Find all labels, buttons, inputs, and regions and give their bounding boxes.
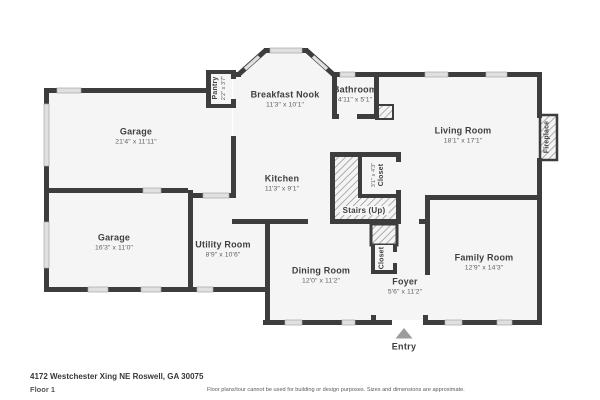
label-closet-stairs: Closet 3'1" x 4'3" [371, 163, 387, 187]
room-dims: 5'6" x 11'2" [388, 289, 422, 297]
foyer-closet-hatch [371, 224, 397, 245]
room-name: Garage [95, 233, 133, 244]
room-name: Dining Room [292, 266, 350, 277]
room-name: Garage [115, 127, 156, 138]
room-label-breakfast-nook: Breakfast Nook 11'3" x 10'1" [251, 90, 320, 111]
floorplan-page: Garage 21'4" x 11'11" Garage 16'3" x 11'… [0, 0, 600, 400]
room-name: Breakfast Nook [251, 90, 320, 101]
room-name: Family Room [455, 253, 514, 264]
room-label-kitchen: Kitchen 11'3" x 9'1" [265, 174, 299, 195]
floorplan-drawing [0, 0, 600, 400]
entry-arrow-icon [396, 328, 413, 339]
room-name: Kitchen [265, 174, 299, 185]
room-label-dining: Dining Room 12'0" x 11'2" [292, 266, 350, 287]
feature-name: Closet [378, 163, 387, 187]
label-fireplace: Fireplace [544, 121, 553, 154]
feature-dims: 2'2" x 3'7" [221, 76, 228, 100]
address-text: 4172 Westchester Xing NE Roswell, GA 300… [30, 372, 203, 381]
label-pantry: Pantry 2'2" x 3'7" [212, 76, 228, 100]
room-dims: 8'9" x 10'6" [195, 252, 250, 260]
feature-name: Stairs (Up) [340, 206, 389, 215]
room-label-family: Family Room 12'9" x 14'3" [455, 253, 514, 274]
label-stairs: Stairs (Up) [340, 199, 389, 219]
feature-name: Pantry [212, 76, 221, 100]
room-name: Utility Room [195, 240, 250, 251]
label-closet-foyer: Closet [379, 247, 388, 270]
room-dims: 12'9" x 14'3" [455, 265, 514, 273]
room-label-living: Living Room 18'1" x 17'1" [435, 126, 492, 147]
room-dims: 18'1" x 17'1" [435, 138, 492, 146]
entry-door-opening [392, 320, 423, 325]
room-name: Living Room [435, 126, 492, 137]
room-label-bathroom: Bathroom 4'11" x 5'1" [333, 85, 377, 106]
room-label-foyer: Foyer 5'6" x 11'2" [388, 277, 422, 298]
feature-name: Fireplace [544, 121, 553, 154]
room-dims: 11'3" x 9'1" [265, 186, 299, 194]
room-name: Foyer [388, 277, 422, 288]
feature-dims: 3'1" x 4'3" [371, 163, 378, 187]
room-label-garage-lower: Garage 16'3" x 11'0" [95, 233, 133, 254]
room-dims: 4'11" x 5'1" [333, 97, 377, 105]
room-label-garage-upper: Garage 21'4" x 11'11" [115, 127, 156, 148]
room-dims: 12'0" x 11'2" [292, 278, 350, 286]
room-name: Bathroom [333, 85, 377, 96]
disclaimer-text: Floor plans/tour cannot be used for buil… [207, 387, 465, 393]
label-entry: Entry [392, 341, 417, 352]
room-dims: 11'3" x 10'1" [251, 102, 320, 110]
feature-name: Closet [379, 247, 388, 270]
room-label-utility: Utility Room 8'9" x 10'6" [195, 240, 250, 261]
room-dims: 21'4" x 11'11" [115, 139, 156, 147]
floor-label: Floor 1 [30, 385, 55, 394]
room-dims: 16'3" x 11'0" [95, 245, 133, 253]
